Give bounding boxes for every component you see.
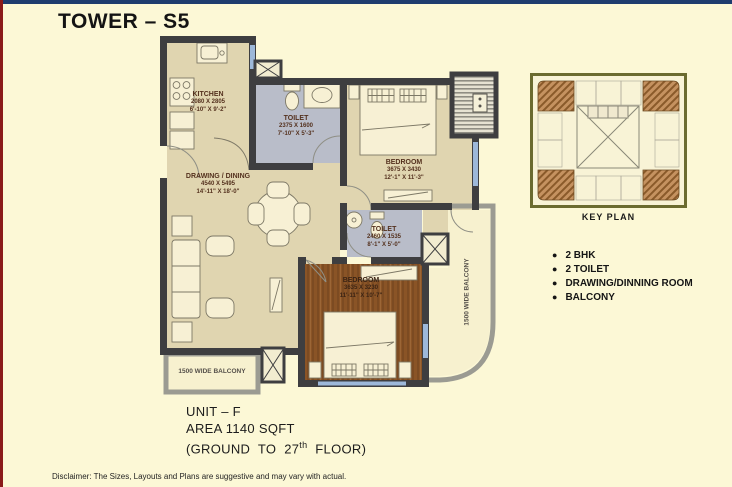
feature-item: ● 2 TOILET — [552, 264, 693, 275]
room-label-drawing-dining: DRAWING / DINING 4540 X 5495 14'-11" X 1… — [186, 172, 250, 197]
unit-info: UNIT – F AREA 1140 SQFT (GROUND TO 27th … — [186, 403, 366, 457]
unit-area: AREA 1140 SQFT — [186, 420, 366, 437]
top-edge-strip — [0, 0, 732, 4]
toilet1-wc — [284, 84, 300, 110]
feature-label: 2 BHK — [565, 250, 595, 261]
toilet2-basin — [346, 212, 362, 228]
unit-floors-prefix: (GROUND TO 27 — [186, 441, 299, 456]
bullet-icon: ● — [552, 265, 557, 274]
bullet-icon: ● — [552, 251, 557, 260]
unit-name: UNIT – F — [186, 403, 366, 420]
duct-top — [255, 61, 281, 78]
key-plan-drawing — [530, 73, 687, 208]
bullet-icon: ● — [552, 279, 557, 288]
screenshot-root: TOWER – S5 — [0, 0, 732, 487]
room-label-bedroom2: BEDROOM 3635 X 3230 11'-11" X 10'-7" — [340, 276, 383, 301]
bedroom2-bed — [309, 312, 411, 378]
room-label-bedroom1: BEDROOM 3675 X 3430 12'-1" X 11'-3" — [384, 158, 424, 183]
feature-label: BALCONY — [565, 292, 614, 303]
page-title: TOWER – S5 — [58, 10, 190, 34]
feature-label: DRAWING/DINNING ROOM — [565, 278, 692, 289]
bullet-icon: ● — [552, 293, 557, 302]
key-plan-label: KEY PLAN — [530, 212, 687, 222]
ac-ledge — [452, 74, 496, 136]
feature-item: ● DRAWING/DINNING ROOM — [552, 278, 693, 289]
duct-bottom — [262, 348, 284, 382]
kitchen-sink — [197, 43, 227, 63]
feature-item: ● 2 BHK — [552, 250, 693, 261]
room-label-toilet1: TOILET 2375 X 1600 7'-10" X 5'-3" — [278, 114, 315, 139]
bedroom1-dresser — [384, 190, 432, 201]
room-label-toilet2: TOILET 2460 X 1535 8'-1" X 5'-0" — [367, 225, 401, 250]
floor-plan-drawing — [156, 32, 504, 404]
unit-floors-suffix: FLOOR) — [307, 441, 366, 456]
key-plan — [530, 73, 687, 208]
feature-item: ● BALCONY — [552, 292, 693, 303]
features-list: ● 2 BHK ● 2 TOILET ● DRAWING/DINNING ROO… — [552, 250, 693, 306]
room-label-kitchen: KITCHEN 2080 X 2805 6'-10" X 9'-2" — [190, 90, 227, 115]
room-label-balcony-right: 1500 WIDE BALCONY — [464, 258, 471, 325]
toilet1-basin — [304, 84, 340, 108]
left-edge-strip — [0, 0, 3, 487]
bedroom1-bed — [349, 85, 447, 155]
duct-right — [422, 234, 448, 264]
feature-label: 2 TOILET — [565, 264, 609, 275]
unit-floors: (GROUND TO 27th FLOOR) — [186, 437, 366, 457]
disclaimer-text: Disclaimer: The Sizes, Layouts and Plans… — [52, 472, 346, 481]
room-label-balcony-bottom: 1500 WIDE BALCONY — [178, 368, 245, 375]
floor-plan: KITCHEN 2080 X 2805 6'-10" X 9'-2" TOILE… — [156, 32, 504, 404]
